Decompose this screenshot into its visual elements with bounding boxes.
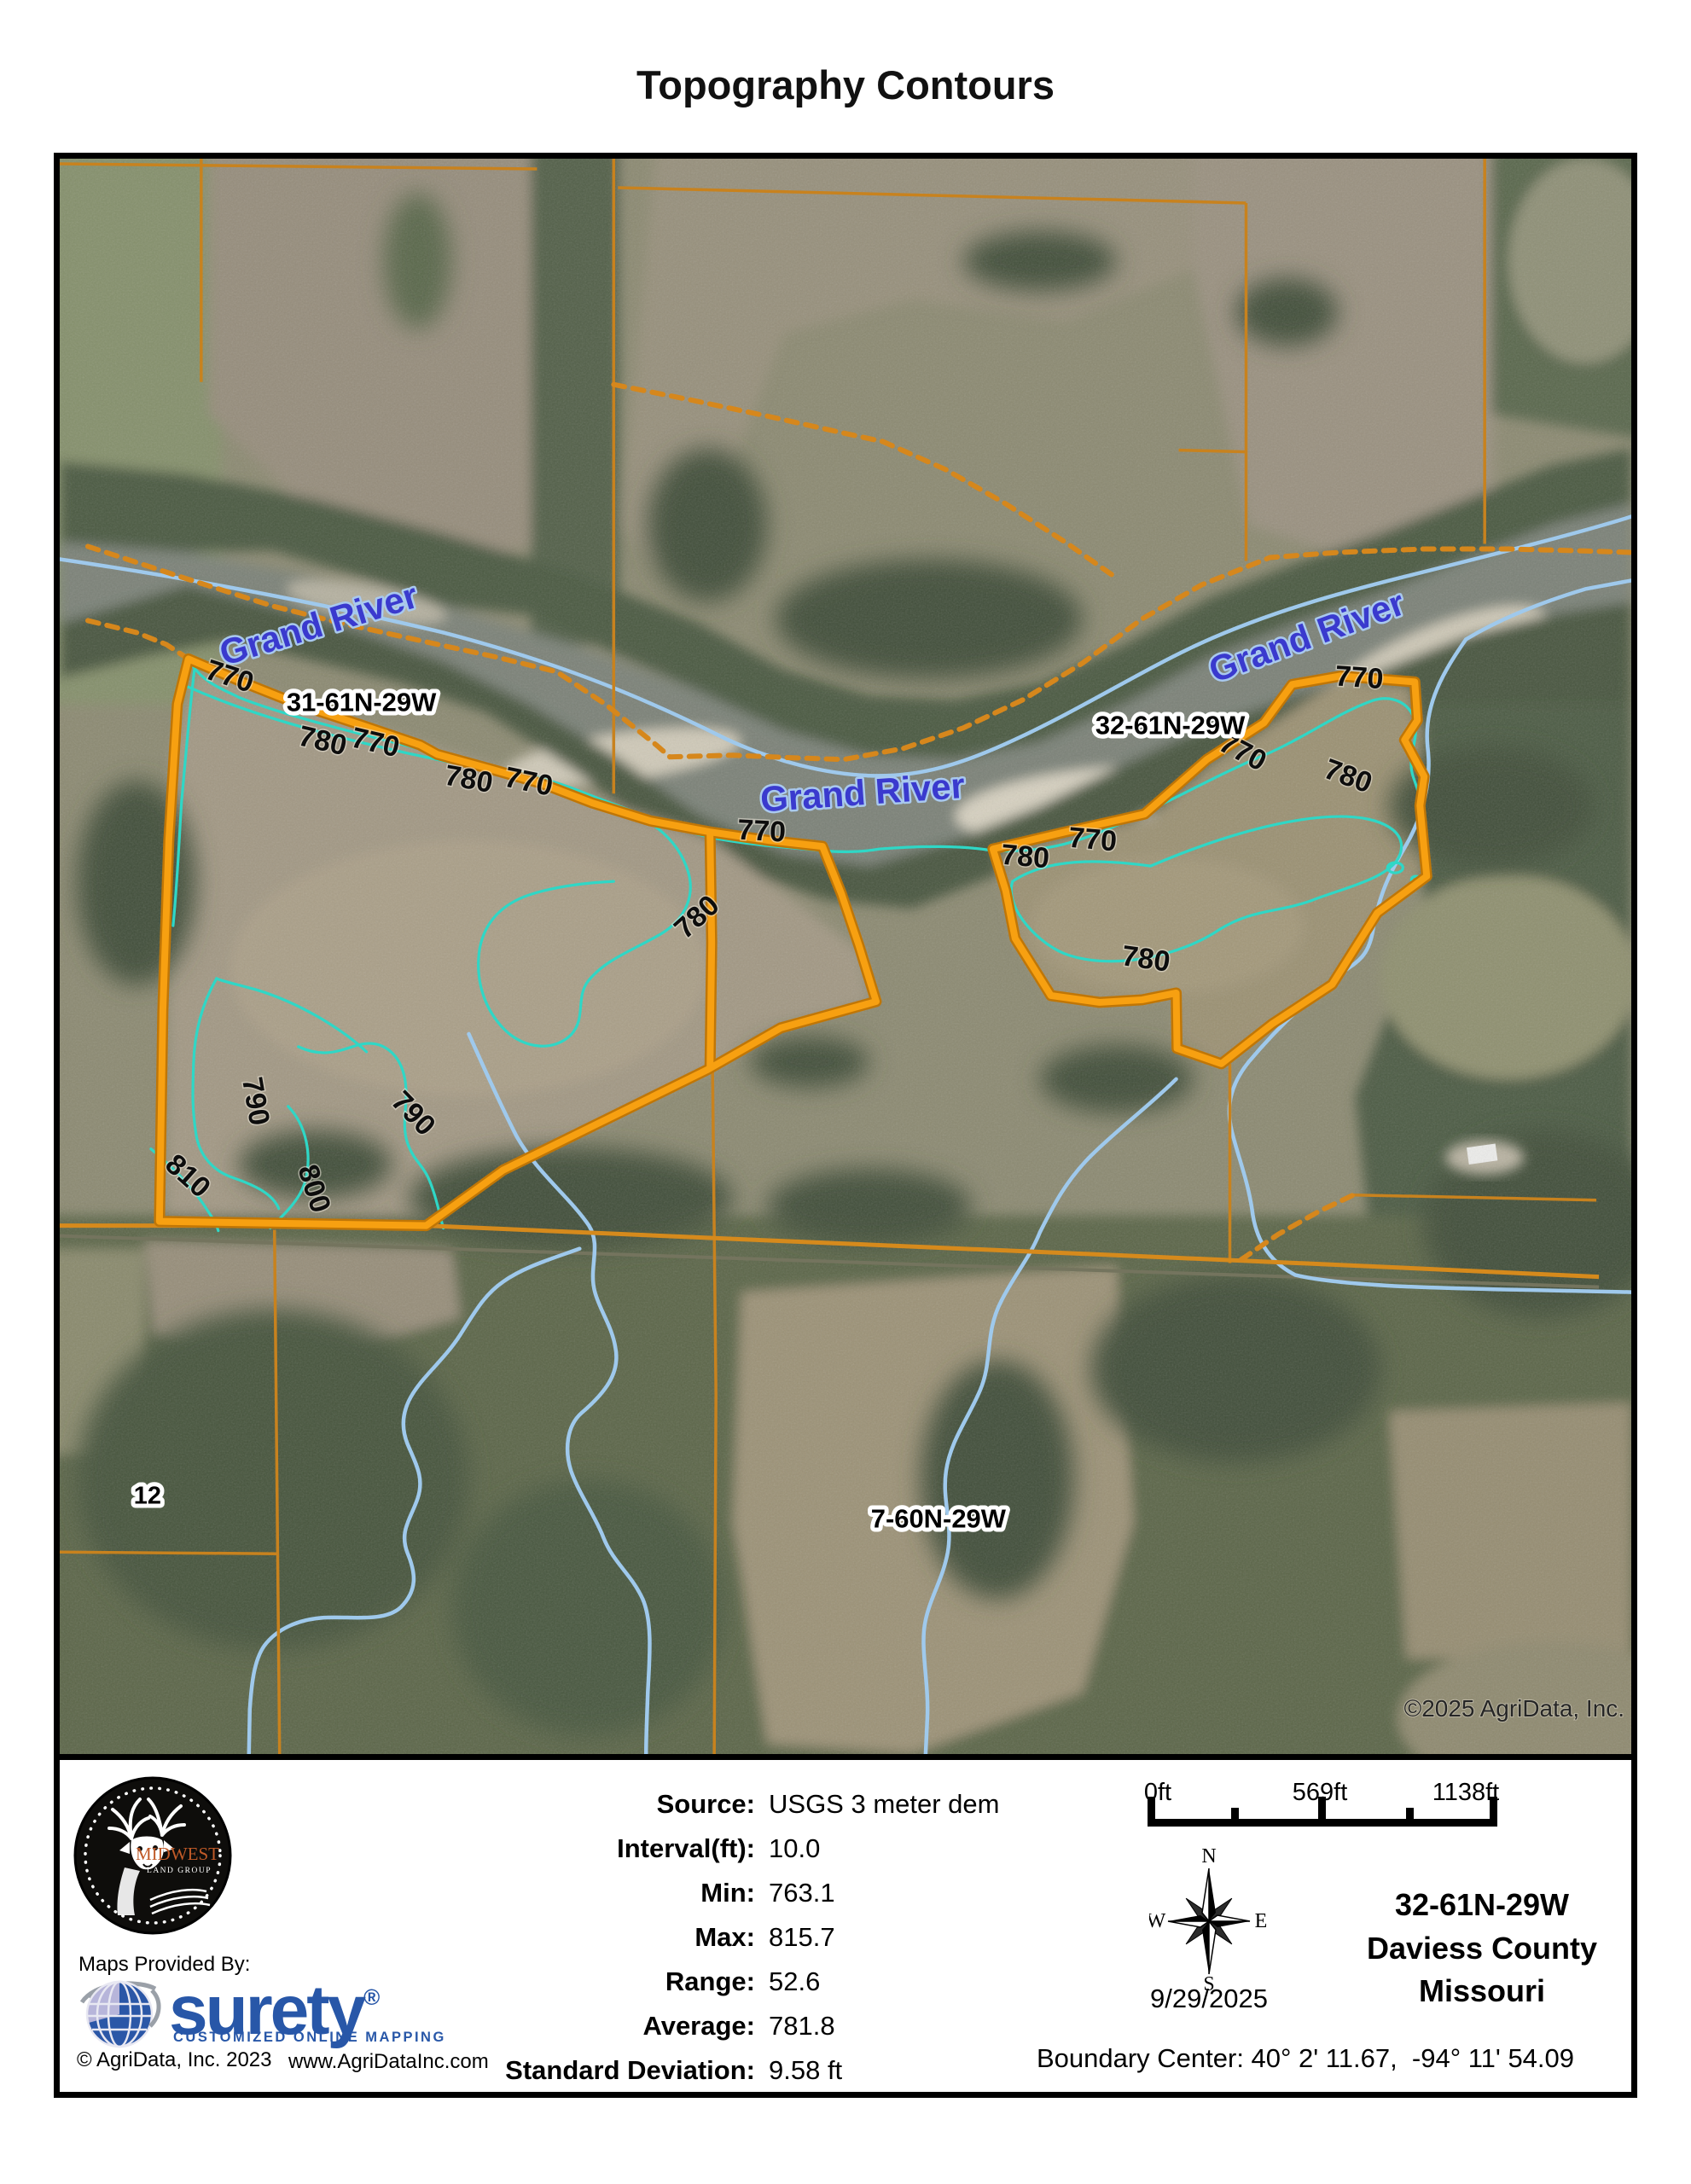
compass-east-label: E: [1255, 1910, 1268, 1932]
county-label: Daviess County: [1311, 1927, 1653, 1970]
midwest-logo-wordmark: MIDWEST: [136, 1844, 219, 1864]
location-block: 32-61N-29W Daviess County Missouri: [1311, 1883, 1653, 2013]
stat-row: Average:781.8: [277, 2004, 999, 2048]
compass-west-label: W: [1149, 1910, 1166, 1932]
stat-value: 763.1: [769, 1878, 835, 1908]
footer-panel: MIDWEST LAND GROUP Maps Provided By: sur…: [54, 1754, 1637, 2098]
agridata-copyright: © AgriData, Inc. 2023: [77, 2048, 271, 2072]
contour-elevation-label: 770: [1334, 659, 1385, 695]
stat-label: Max:: [277, 1922, 755, 1953]
section-township-label: 32-61N-29W: [1095, 710, 1246, 740]
stat-value: 10.0: [769, 1833, 820, 1864]
stat-label: Interval(ft):: [277, 1833, 755, 1864]
scale-end-label: 1138ft: [1398, 1779, 1534, 1807]
stat-label: Average:: [277, 2011, 755, 2042]
stat-value: USGS 3 meter dem: [769, 1789, 999, 1820]
midwest-logo-subtext: LAND GROUP: [147, 1867, 212, 1875]
aerial-map-image: 7707807707807707707807907908008107807707…: [60, 159, 1631, 1754]
page-title: Topography Contours: [0, 61, 1691, 108]
stat-row: Range:52.6: [277, 1960, 999, 2004]
stat-label: Source:: [277, 1789, 755, 1820]
midwest-land-group-logo: MIDWEST LAND GROUP: [72, 1772, 234, 1939]
stat-value: 815.7: [769, 1922, 835, 1953]
stat-label: Min:: [277, 1878, 755, 1908]
state-label: Missouri: [1311, 1970, 1653, 2013]
section-township-label: 12: [134, 1482, 161, 1509]
stat-row: Max:815.7: [277, 1915, 999, 1960]
township-range-label: 32-61N-29W: [1311, 1883, 1653, 1927]
compass-rose-icon: N S W E: [1149, 1849, 1269, 1994]
contour-elevation-label: 780: [1119, 939, 1171, 979]
terrain-noise: [60, 159, 1631, 1754]
stat-label: Standard Deviation:: [277, 2055, 755, 2086]
map-copyright: ©2025 AgriData, Inc.: [1404, 1695, 1624, 1722]
section-township-label: 31-61N-29W: [287, 687, 437, 717]
boundary-center-coordinates: Boundary Center: 40° 2' 11.67, -94° 11' …: [947, 2043, 1664, 2074]
section-township-label: 7-60N-29W: [871, 1503, 1007, 1533]
stat-value: 781.8: [769, 2011, 835, 2042]
stat-label: Range:: [277, 1966, 755, 1997]
contour-elevation-label: 780: [1000, 839, 1051, 875]
contour-elevation-label: 770: [1067, 822, 1119, 858]
map-date: 9/29/2025: [1124, 1984, 1294, 2014]
stat-row: Standard Deviation:9.58 ft: [277, 2048, 999, 2093]
topography-map: 7707807707807707707807907908008107807707…: [54, 153, 1637, 1760]
elevation-stats: Source:USGS 3 meter demInterval(ft):10.0…: [277, 1782, 999, 2093]
compass-north-label: N: [1201, 1849, 1216, 1867]
stat-row: Min:763.1: [277, 1871, 999, 1915]
stat-value: 52.6: [769, 1966, 820, 1997]
stat-row: Source:USGS 3 meter dem: [277, 1782, 999, 1827]
scale-start-label: 0ft: [1090, 1779, 1226, 1807]
stat-row: Interval(ft):10.0: [277, 1827, 999, 1871]
stat-value: 9.58 ft: [769, 2055, 842, 2086]
surety-globe-icon: [77, 1972, 166, 2050]
